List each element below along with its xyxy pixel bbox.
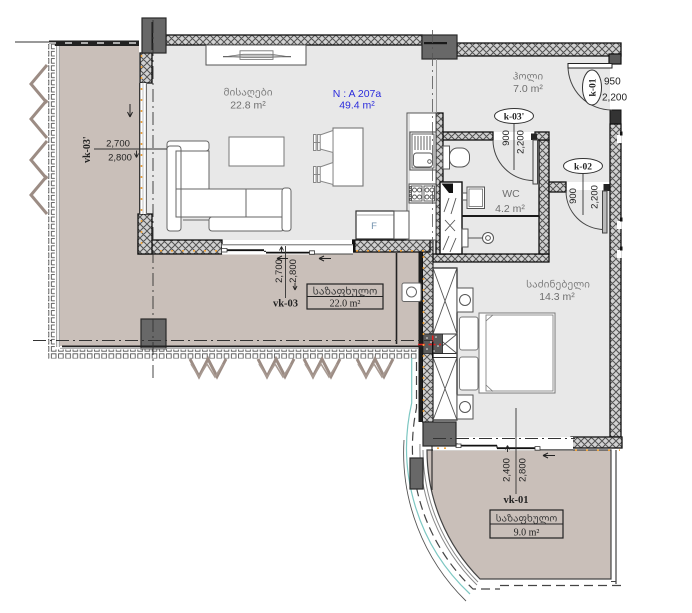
svg-text:900: 900 — [568, 188, 579, 204]
svg-text:49.4 m²: 49.4 m² — [339, 100, 375, 112]
svg-text:900: 900 — [501, 130, 512, 146]
svg-text:2,800: 2,800 — [518, 458, 529, 482]
svg-text:22.8 m²: 22.8 m² — [230, 100, 266, 112]
svg-text:2,800: 2,800 — [108, 153, 132, 164]
svg-text:F: F — [371, 221, 377, 232]
svg-text:vk-03': vk-03' — [82, 136, 93, 163]
svg-text:2,700: 2,700 — [106, 139, 130, 150]
svg-text:vk-03: vk-03 — [273, 299, 298, 310]
svg-text:22.0 m²: 22.0 m² — [330, 299, 361, 310]
svg-text:950: 950 — [604, 77, 621, 88]
svg-text:k-03': k-03' — [504, 113, 525, 123]
svg-text:9.0 m²: 9.0 m² — [514, 528, 540, 539]
svg-text:4.2 m²: 4.2 m² — [495, 203, 525, 215]
svg-text:2,400: 2,400 — [502, 458, 513, 482]
svg-text:14.3 m²: 14.3 m² — [539, 291, 575, 303]
svg-text:k-02: k-02 — [574, 163, 592, 173]
svg-text:2,700: 2,700 — [274, 259, 285, 283]
svg-text:2,800: 2,800 — [288, 259, 299, 283]
svg-text:vk-01: vk-01 — [503, 495, 528, 506]
svg-text:N : A 207a: N : A 207a — [333, 88, 382, 100]
svg-text:WC: WC — [502, 188, 520, 200]
svg-text:7.0 m²: 7.0 m² — [513, 83, 543, 95]
svg-text:2,200: 2,200 — [516, 130, 527, 154]
svg-text:2,200: 2,200 — [602, 93, 627, 104]
svg-text:2,200: 2,200 — [590, 185, 601, 209]
svg-text:k-01: k-01 — [589, 78, 599, 96]
